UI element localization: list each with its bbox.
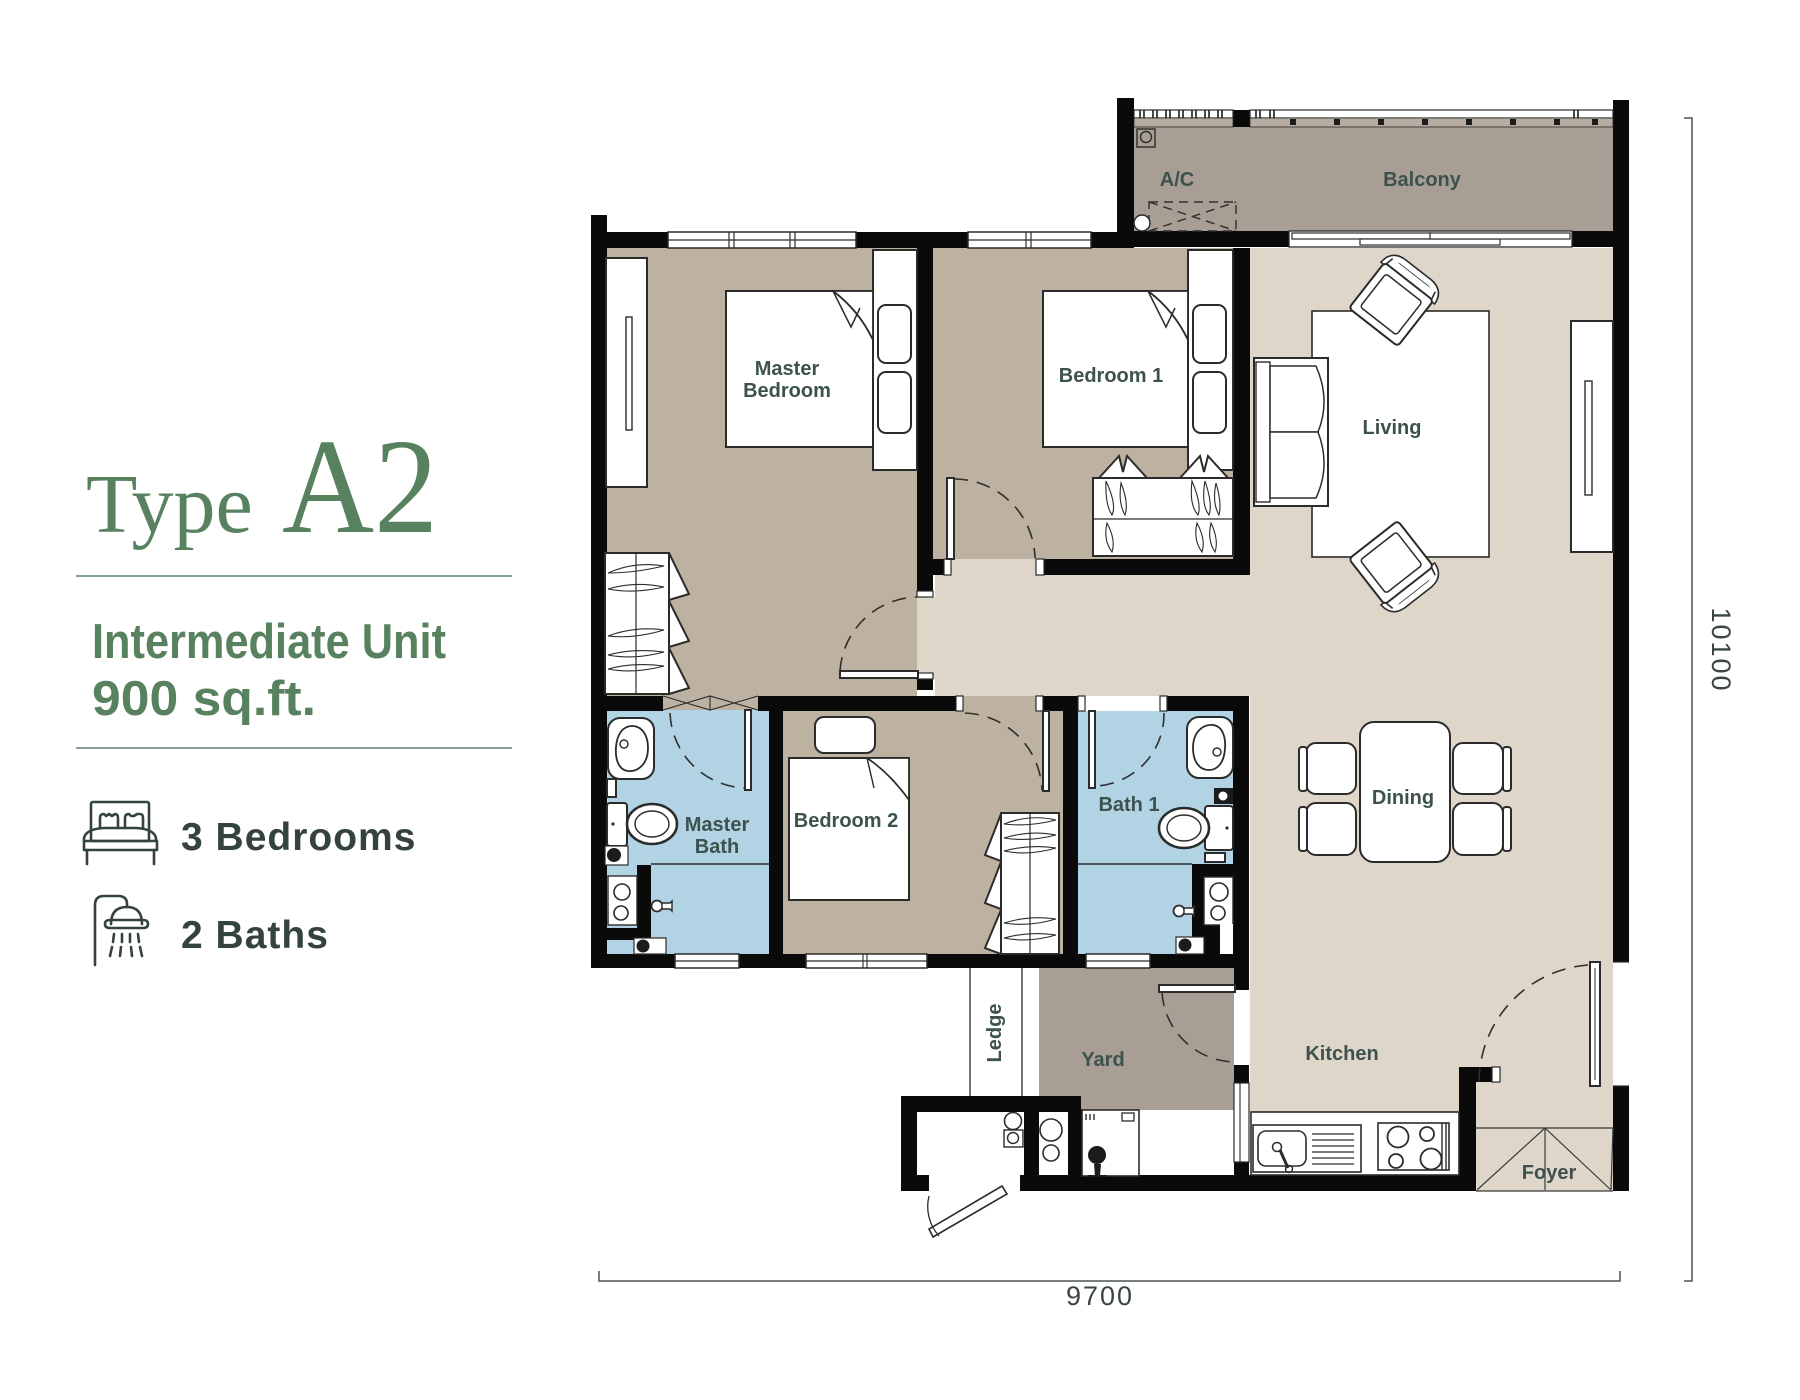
svg-text:3 Bedrooms: 3 Bedrooms	[181, 816, 416, 859]
svg-text:10100: 10100	[1706, 607, 1736, 692]
svg-text:Living: Living	[1363, 417, 1422, 439]
svg-text:Balcony: Balcony	[1383, 169, 1462, 191]
svg-text:Intermediate Unit: Intermediate Unit	[92, 615, 446, 669]
svg-text:Bedroom: Bedroom	[743, 380, 831, 402]
svg-text:Type: Type	[86, 458, 253, 551]
svg-text:2 Baths: 2 Baths	[181, 914, 329, 957]
svg-text:Bedroom 1: Bedroom 1	[1059, 365, 1163, 387]
svg-text:A2: A2	[282, 412, 438, 562]
svg-text:Yard: Yard	[1081, 1049, 1124, 1071]
svg-text:Master: Master	[685, 814, 750, 836]
svg-text:Bath: Bath	[695, 836, 739, 858]
svg-text:Kitchen: Kitchen	[1305, 1043, 1378, 1065]
svg-text:A/C: A/C	[1160, 169, 1194, 191]
svg-text:Ledge: Ledge	[984, 1004, 1006, 1063]
svg-text:Foyer: Foyer	[1522, 1162, 1577, 1184]
svg-text:Master: Master	[755, 358, 820, 380]
svg-text:Bedroom 2: Bedroom 2	[794, 810, 898, 832]
svg-text:9700: 9700	[1066, 1281, 1134, 1311]
svg-text:Bath 1: Bath 1	[1098, 794, 1159, 816]
svg-text:Dining: Dining	[1372, 787, 1434, 809]
svg-text:900 sq.ft.: 900 sq.ft.	[92, 672, 316, 726]
